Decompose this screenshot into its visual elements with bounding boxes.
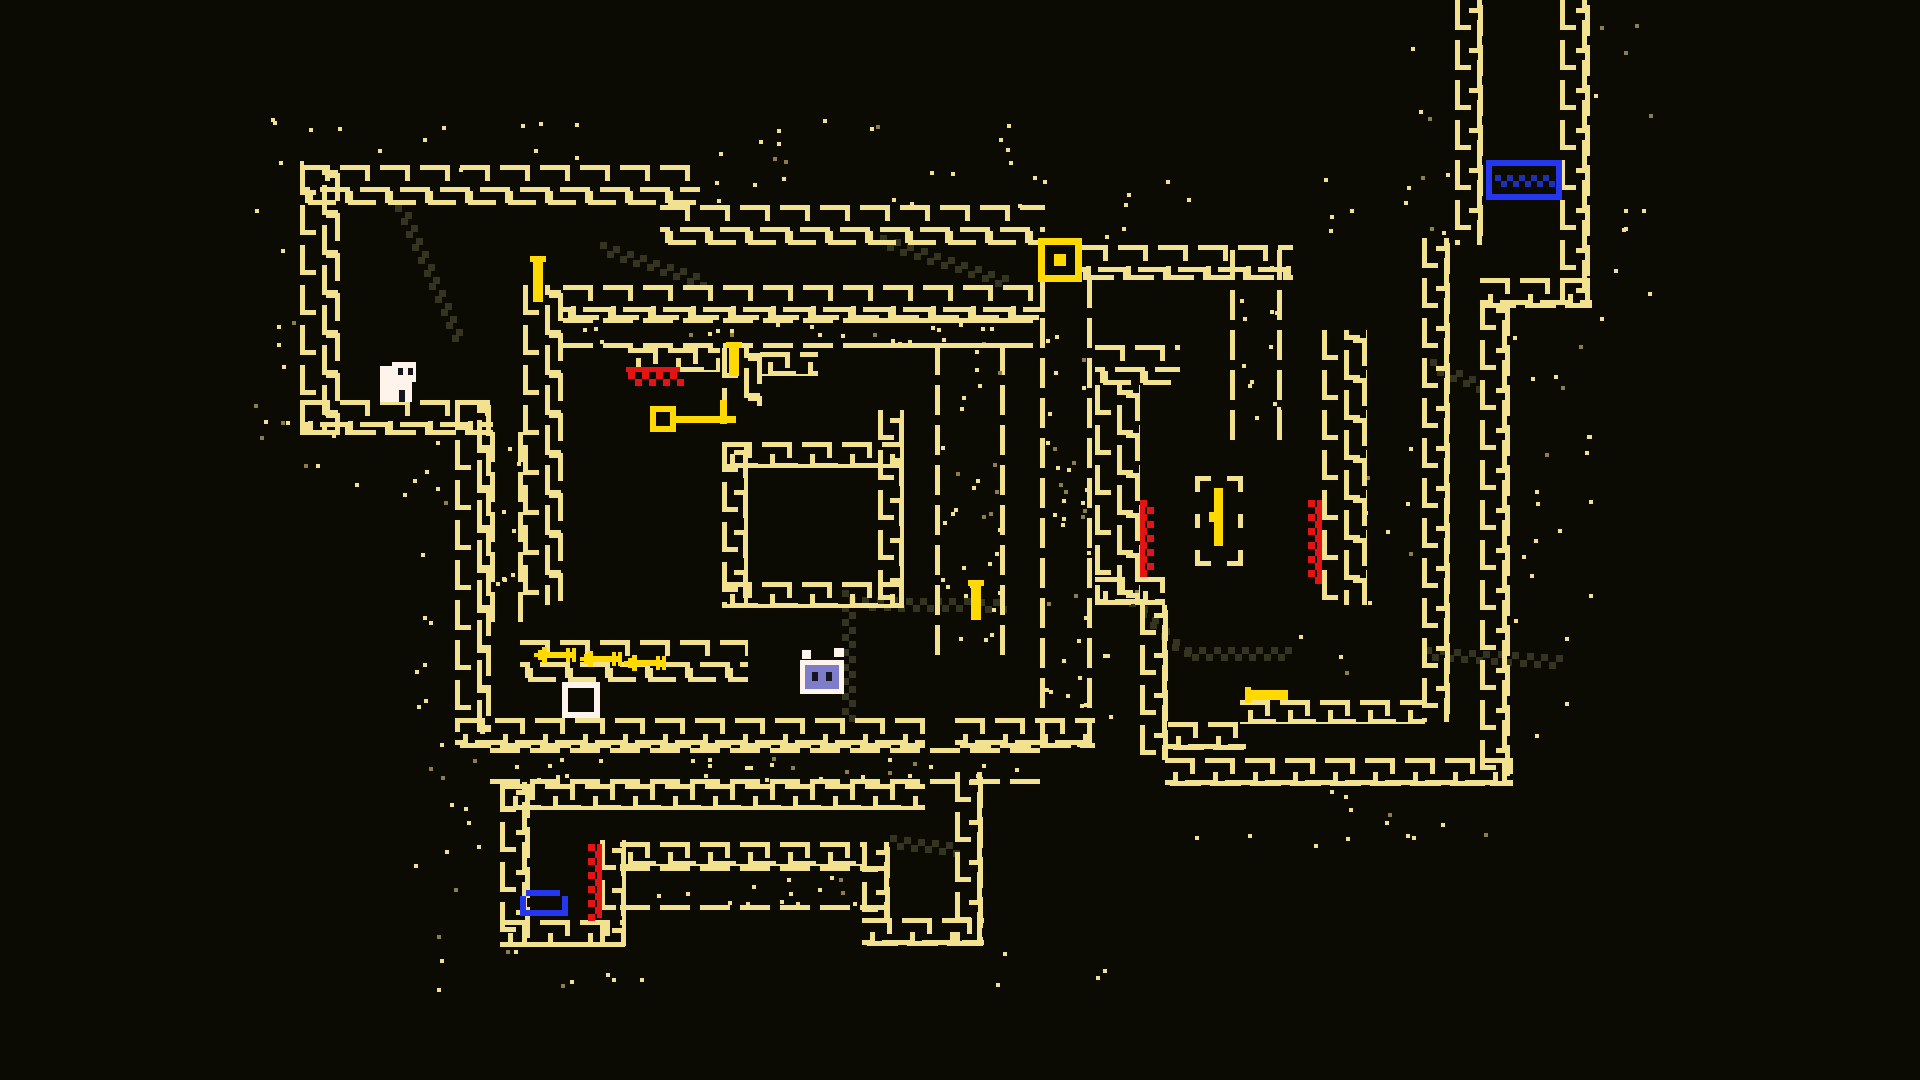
bowl-sprite[interactable]: [514, 886, 570, 920]
player-sprite[interactable]: [378, 356, 420, 404]
slime-enemy-sprite[interactable]: [798, 648, 848, 700]
shrine-sprite[interactable]: [1195, 476, 1247, 568]
bed-sprite[interactable]: [1486, 160, 1564, 204]
game-viewport: [0, 0, 1920, 1080]
dungeon-map-canvas[interactable]: [0, 0, 1920, 1080]
chest-box-sprite[interactable]: [558, 678, 604, 722]
door-sprite[interactable]: [1038, 238, 1084, 284]
key-icon[interactable]: [650, 400, 742, 438]
